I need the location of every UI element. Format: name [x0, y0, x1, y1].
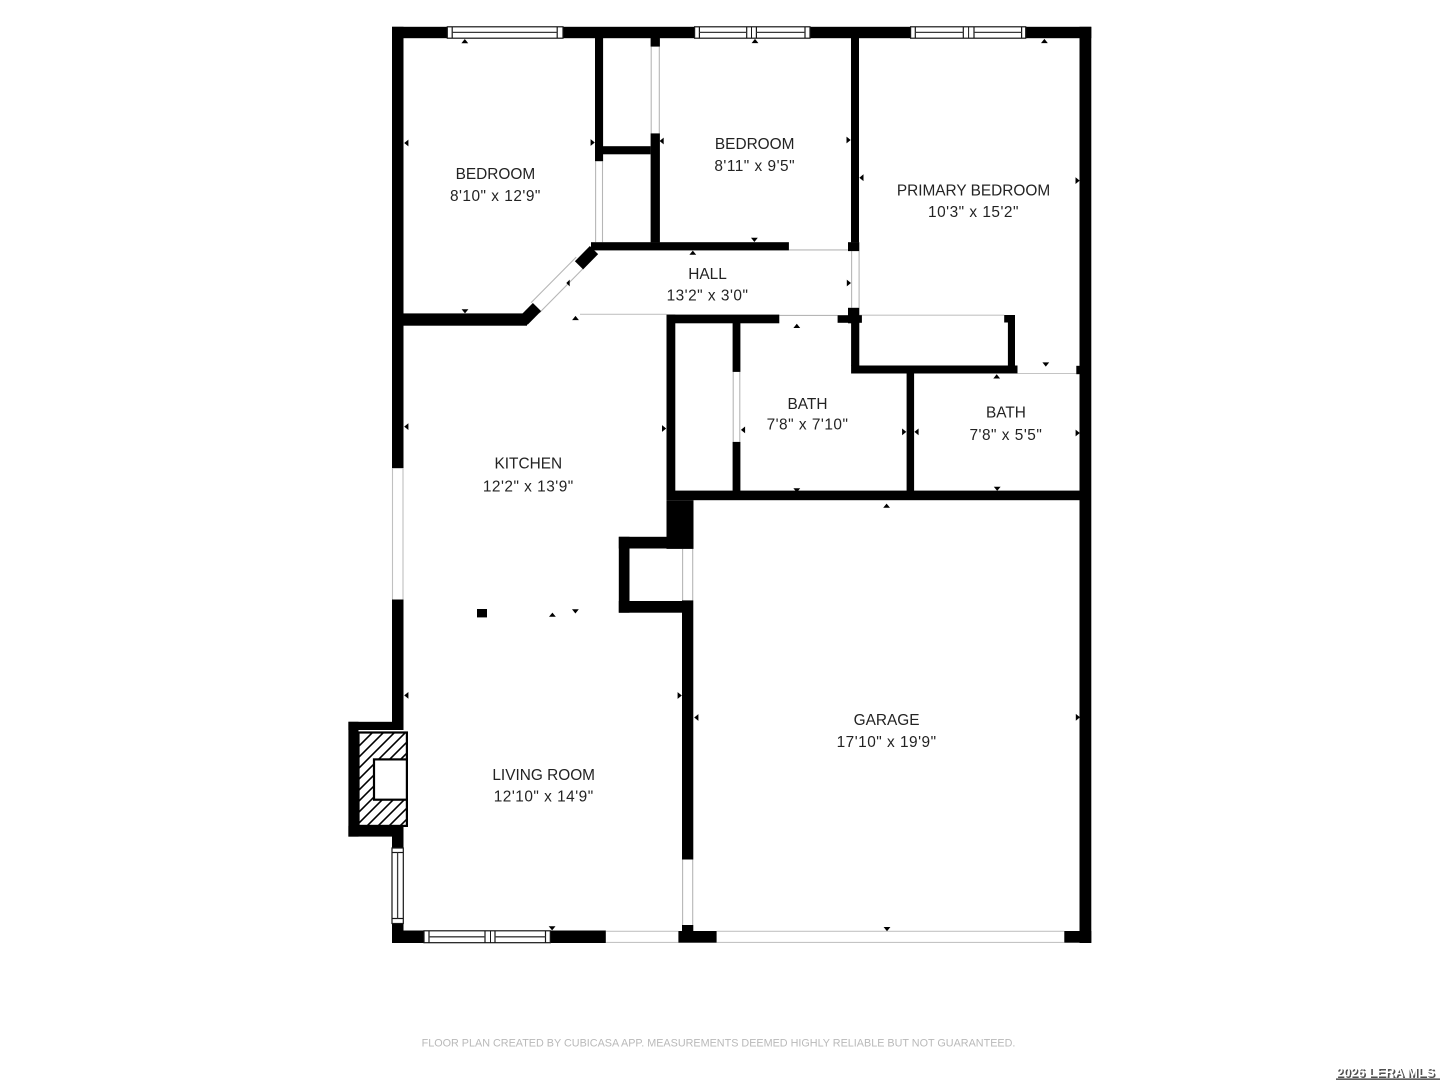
svg-text:13'2" x 3'0": 13'2" x 3'0" [667, 288, 749, 305]
svg-text:BEDROOM: BEDROOM [715, 136, 795, 153]
svg-text:BATH: BATH [788, 396, 828, 413]
svg-text:8'10" x 12'9": 8'10" x 12'9" [450, 188, 541, 205]
svg-text:FLOOR PLAN CREATED BY CUBICASA: FLOOR PLAN CREATED BY CUBICASA APP. MEAS… [422, 1038, 1016, 1050]
svg-text:12'10" x 14'9": 12'10" x 14'9" [494, 789, 594, 806]
svg-text:HALL: HALL [688, 266, 727, 283]
svg-text:2026 LERA MLS: 2026 LERA MLS [1336, 1064, 1435, 1079]
svg-text:8'11" x 9'5": 8'11" x 9'5" [714, 158, 795, 175]
svg-text:KITCHEN: KITCHEN [495, 456, 563, 473]
svg-text:17'10" x 19'9": 17'10" x 19'9" [837, 734, 937, 751]
svg-text:GARAGE: GARAGE [854, 712, 920, 729]
svg-text:BEDROOM: BEDROOM [456, 166, 536, 183]
svg-text:10'3" x 15'2": 10'3" x 15'2" [928, 204, 1019, 221]
svg-text:12'2" x 13'9": 12'2" x 13'9" [483, 478, 574, 495]
svg-text:LIVING ROOM: LIVING ROOM [492, 767, 595, 784]
svg-text:BATH: BATH [986, 405, 1026, 422]
svg-text:PRIMARY BEDROOM: PRIMARY BEDROOM [897, 183, 1050, 200]
svg-text:7'8" x 7'10": 7'8" x 7'10" [767, 417, 849, 434]
svg-text:7'8" x 5'5": 7'8" x 5'5" [970, 427, 1043, 444]
